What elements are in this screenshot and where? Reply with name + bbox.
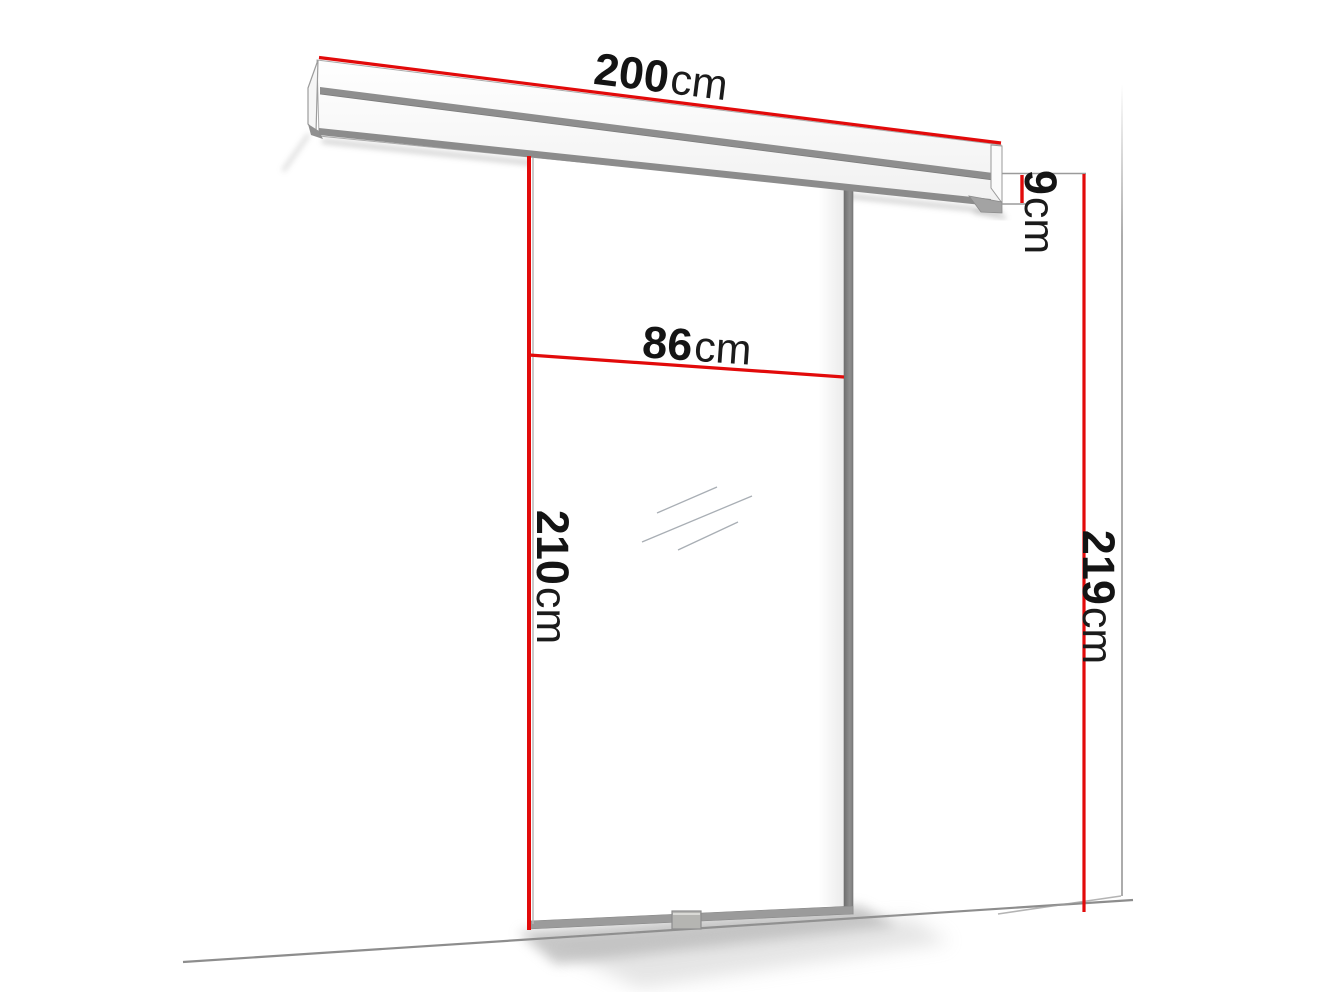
dimension-unit: cm [668, 58, 730, 108]
dimension-value: 200 [592, 46, 672, 100]
dimension-value: 86 [641, 319, 694, 367]
track-left-shadow [283, 134, 309, 171]
dimension-value: 219 [1076, 530, 1121, 605]
dimension-label-track-height: 9cm [1017, 170, 1063, 254]
dimension-unit: cm [1017, 197, 1060, 254]
diagram-canvas [0, 0, 1322, 992]
wall-floor-junction-line [998, 896, 1121, 914]
dimension-unit: cm [1075, 607, 1118, 664]
dimension-label-total-height: 219cm [1075, 530, 1121, 664]
track-left-cap [308, 60, 318, 133]
door-face-shading [818, 187, 844, 907]
dimension-label-door-height: 210cm [529, 510, 575, 644]
dimension-diagram: 200cm 9cm 86cm 210cm 219cm [0, 0, 1322, 992]
door-right-edge [844, 189, 853, 914]
dimension-label-door-width: 86cm [641, 319, 753, 373]
dimension-value: 210 [530, 510, 575, 585]
dimension-unit: cm [693, 326, 753, 373]
dimension-unit: cm [529, 587, 572, 644]
dimension-value: 9 [1018, 170, 1063, 195]
